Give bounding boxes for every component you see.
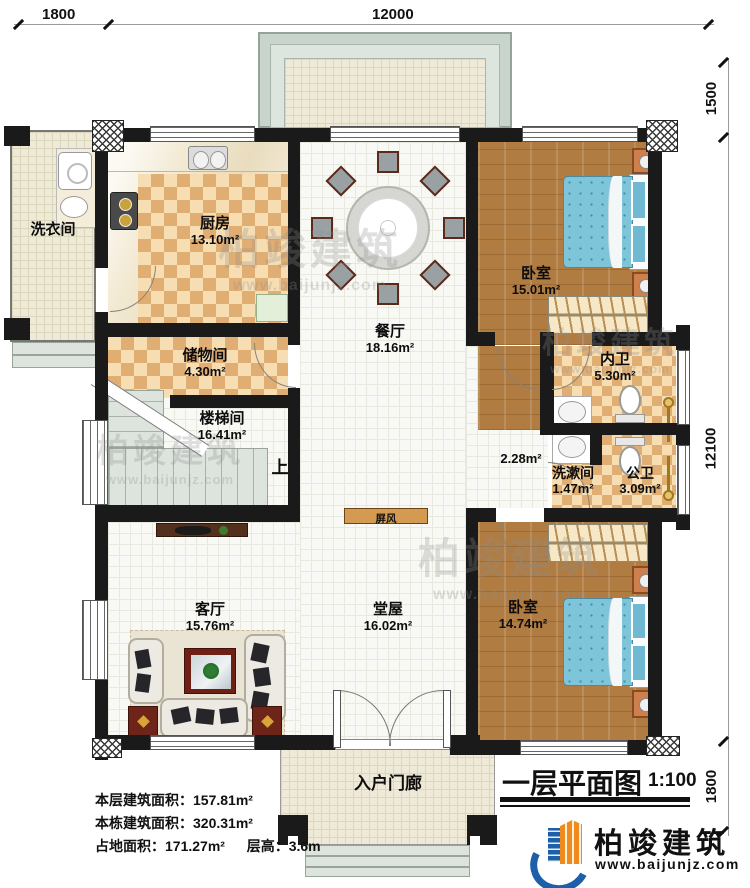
dining-table-center	[380, 220, 396, 236]
star-ornament	[137, 715, 150, 728]
room-label-storage: 储物间 4.30m²	[182, 348, 227, 379]
wall	[170, 395, 300, 408]
room-name: 厨房	[191, 216, 239, 233]
room-name: 洗衣间	[30, 222, 75, 239]
porch-step	[305, 867, 470, 877]
entry-door-leaf	[333, 690, 341, 748]
laundry-step	[12, 355, 98, 368]
wall	[255, 128, 330, 142]
wall	[288, 142, 300, 337]
bed-mattress	[563, 598, 633, 686]
wall	[648, 510, 662, 755]
room-label-bedroom-bottom: 卧室 14.74m²	[499, 600, 547, 631]
toilet-bowl	[619, 385, 641, 415]
info-value: 320.31m²	[193, 815, 253, 831]
sink-basin	[193, 151, 209, 169]
room-name: 楼梯间	[198, 411, 246, 428]
info-label: 本栋建筑面积：	[95, 815, 193, 831]
room-label-dining: 餐厅 18.16m²	[366, 324, 414, 355]
wall	[466, 508, 496, 522]
room-area: 18.16m²	[366, 341, 414, 356]
kitchen-stove	[110, 192, 138, 230]
kitchen-fridge	[256, 294, 288, 322]
room-name: 餐厅	[366, 324, 414, 341]
room-label-public-bath: 公卫 3.09m²	[619, 466, 660, 496]
bed-mattress	[563, 176, 633, 268]
kitchen-window	[150, 126, 255, 142]
sink-basin	[210, 151, 226, 169]
cushion	[253, 667, 271, 687]
brand-url: www.baijunjz.com	[595, 856, 740, 872]
sofa-bottom	[160, 698, 248, 738]
room-area: 14.74m²	[499, 617, 547, 632]
plant	[203, 663, 219, 679]
title-underline-thin	[500, 805, 690, 807]
room-name: 入户门廊	[354, 774, 422, 793]
wall	[466, 128, 478, 346]
cushion	[219, 707, 239, 724]
logo-building-blue	[548, 828, 560, 862]
dim-label-12100: 12100	[702, 428, 719, 470]
tv	[175, 526, 211, 535]
porch-step	[305, 856, 470, 867]
ensuite-sink	[558, 401, 586, 423]
coffee-table	[184, 648, 236, 694]
cushion	[195, 708, 214, 725]
room-name: 堂屋	[364, 602, 412, 619]
pillow	[631, 602, 647, 640]
room-label-stairwell: 楼梯间 16.41m²	[198, 411, 246, 442]
pillow	[631, 224, 647, 264]
room-label-laundry: 洗衣间	[30, 222, 75, 239]
room-area: 5.30m²	[594, 369, 635, 384]
info-value: 3.6m	[289, 838, 321, 854]
wall	[466, 332, 495, 346]
wall	[648, 142, 662, 332]
washing-machine	[58, 152, 92, 190]
bed-sheet-fold	[608, 598, 622, 686]
wall	[255, 735, 335, 750]
dim-label-1800-right: 1800	[703, 770, 720, 803]
wall	[466, 510, 478, 755]
armchair-left	[128, 638, 164, 704]
stairs-up-label: 上	[272, 458, 289, 477]
info-label: 占地面积：	[95, 838, 165, 854]
column-pier	[92, 120, 124, 152]
kitchen-sink	[188, 146, 228, 170]
room-name: 卧室	[499, 600, 547, 617]
dimension-line-right	[728, 58, 729, 836]
side-table	[252, 706, 282, 736]
stairs-up-text: 上	[272, 458, 289, 477]
room-area: 4.30m²	[182, 365, 227, 380]
room-name: 储物间	[182, 348, 227, 365]
pier-notch	[470, 836, 480, 845]
info-label: 本层建筑面积：	[95, 792, 193, 808]
room-name: 内卫	[594, 352, 635, 369]
burner	[119, 214, 132, 227]
wall	[544, 508, 690, 522]
room-area: 2.28m²	[500, 452, 541, 467]
cushion	[135, 673, 151, 693]
room-area: 15.01m²	[512, 283, 560, 298]
bedroom-bottom-window	[520, 740, 628, 755]
title-underline-thick	[500, 797, 690, 802]
wall	[592, 332, 690, 346]
laundry-sink	[60, 196, 88, 218]
room-name: 洗漱间	[552, 466, 594, 482]
room-name: 卧室	[512, 266, 560, 283]
wall	[95, 505, 300, 522]
dining-chair	[377, 151, 399, 173]
info-building-area: 本栋建筑面积：320.31m²	[95, 813, 253, 833]
brand-logo-icon	[530, 818, 588, 880]
washer-drum	[67, 163, 88, 184]
room-area: 13.10m²	[191, 233, 239, 248]
plant	[219, 526, 228, 535]
room-label-living: 客厅 15.76m²	[186, 602, 234, 633]
stairwell-window	[82, 420, 108, 505]
room-label-ensuite: 内卫 5.30m²	[594, 352, 635, 383]
column-pier	[646, 736, 680, 756]
dining-chair	[443, 217, 465, 239]
entry-door-leaf	[443, 690, 451, 748]
side-table	[128, 706, 158, 736]
public-bath-window	[677, 445, 690, 515]
bed-sheet-fold	[608, 176, 622, 268]
living-bottom-window	[150, 735, 255, 750]
wall	[288, 388, 300, 508]
folding-screen: 屏风	[344, 508, 428, 524]
room-label-washroom: 洗漱间 1.47m²	[552, 466, 594, 496]
screen-label: 屏风	[376, 513, 397, 525]
bedroom-top-window	[522, 126, 638, 142]
dining-chair	[311, 217, 333, 239]
wall	[108, 323, 300, 337]
wall	[540, 423, 690, 435]
room-area: 16.02m²	[364, 619, 412, 634]
laundry-step	[12, 342, 98, 355]
column-pier	[646, 120, 678, 152]
info-footprint: 占地面积：171.27m² 层高：3.6m	[95, 836, 321, 856]
dining-window	[330, 126, 460, 142]
cushion	[250, 643, 269, 664]
room-label-corridor: 2.28m²	[500, 452, 541, 467]
wall	[95, 312, 108, 420]
room-label-hall: 堂屋 16.02m²	[364, 602, 412, 633]
living-window	[82, 600, 108, 680]
porch-step	[305, 845, 470, 856]
column-pier	[92, 738, 122, 758]
room-area: 16.41m²	[198, 428, 246, 443]
toilet-tank	[615, 414, 645, 423]
logo-building-orange	[560, 820, 582, 864]
room-label-bedroom-top: 卧室 15.01m²	[512, 266, 560, 297]
room-area: 15.76m²	[186, 619, 234, 634]
wall	[478, 740, 520, 755]
tv-cabinet	[156, 523, 248, 537]
info-floor-area: 本层建筑面积：157.81m²	[95, 790, 253, 810]
washroom-sink	[558, 436, 586, 458]
toilet-tank	[615, 437, 645, 446]
room-name: 客厅	[186, 602, 234, 619]
wall	[590, 435, 602, 465]
dimension-line-top	[14, 24, 714, 25]
plan-title: 一层平面图	[502, 762, 642, 802]
burner	[119, 198, 132, 211]
pillow	[631, 180, 647, 220]
entry-porch-floor	[280, 748, 495, 845]
laundry-corner-column	[4, 126, 30, 146]
stairs-lower-flight	[108, 448, 268, 508]
star-ornament	[261, 715, 274, 728]
dim-label-12000: 12000	[372, 6, 414, 23]
pillow	[631, 644, 647, 682]
laundry-corner-column	[4, 318, 30, 340]
cushion	[171, 706, 192, 724]
dining-chair	[377, 283, 399, 305]
room-label-entry-porch: 入户门廊	[354, 774, 422, 793]
wardrobe	[548, 296, 648, 334]
wardrobe	[548, 524, 648, 562]
terrace-floor	[284, 58, 486, 128]
dim-label-1500: 1500	[703, 82, 720, 115]
floor-plan: 1800 12000 1500 12100 1800	[0, 0, 750, 888]
info-value: 171.27m²	[165, 838, 225, 854]
info-value: 157.81m²	[193, 792, 253, 808]
cushion	[135, 649, 152, 669]
ensuite-window	[677, 350, 690, 425]
room-name: 公卫	[619, 466, 660, 482]
room-area: 1.47m²	[552, 482, 594, 497]
plan-scale: 1:100	[648, 770, 697, 792]
room-label-kitchen: 厨房 13.10m²	[191, 216, 239, 247]
shower-head	[663, 490, 674, 501]
shower-head	[663, 397, 674, 408]
room-area: 3.09m²	[619, 482, 660, 497]
dim-label-1800-top: 1800	[42, 6, 75, 23]
shower-rod	[667, 456, 670, 492]
info-label: 层高：	[247, 838, 289, 854]
